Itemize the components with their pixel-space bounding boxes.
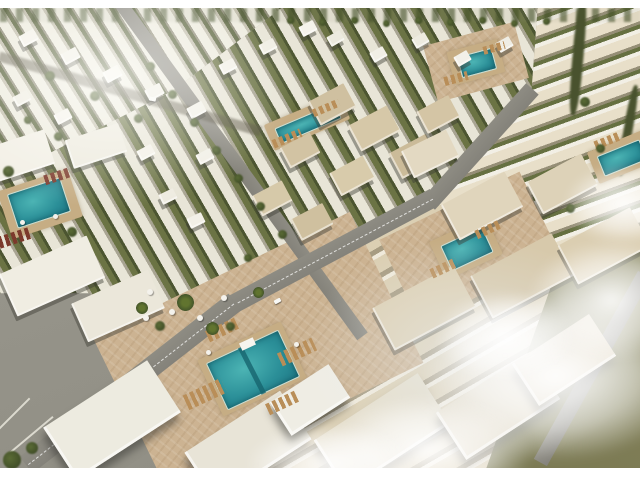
roadside-tree xyxy=(383,20,390,27)
roadside-tree xyxy=(447,19,454,26)
roadside-tree xyxy=(511,20,518,27)
cloud xyxy=(245,424,415,468)
patio-umbrella xyxy=(221,295,227,301)
roadside-tree xyxy=(479,17,486,24)
garden-tree xyxy=(67,227,77,237)
patio-umbrella xyxy=(206,350,211,355)
patio-umbrella xyxy=(143,315,149,321)
garden-tree xyxy=(580,97,590,107)
rendered-aerial-photo-frame xyxy=(0,0,640,480)
roadside-tree xyxy=(351,17,358,24)
patio-umbrella xyxy=(169,309,175,315)
courtyard-palm xyxy=(253,287,264,298)
corner-tree xyxy=(26,442,38,454)
garden-tree xyxy=(226,322,235,331)
roadside-tree xyxy=(319,19,326,26)
garden-tree xyxy=(244,254,252,262)
cloud xyxy=(435,291,575,381)
garden-tree xyxy=(596,144,605,153)
cloud xyxy=(564,164,640,244)
courtyard-palm xyxy=(177,294,194,311)
aerial-resort-render xyxy=(0,8,640,468)
street-tree xyxy=(278,230,287,239)
courtyard-palm xyxy=(206,322,219,335)
sun-glare xyxy=(0,8,300,208)
patio-umbrella xyxy=(197,315,203,321)
garden-tree xyxy=(155,321,165,331)
patio-umbrella xyxy=(20,220,25,225)
roadside-tree xyxy=(543,18,550,25)
patio-umbrella xyxy=(294,342,299,347)
patio-umbrella xyxy=(53,214,58,219)
roadside-tree xyxy=(415,17,422,24)
courtyard-palm xyxy=(136,302,148,314)
corner-tree xyxy=(3,451,21,468)
patio-umbrella xyxy=(147,289,153,295)
